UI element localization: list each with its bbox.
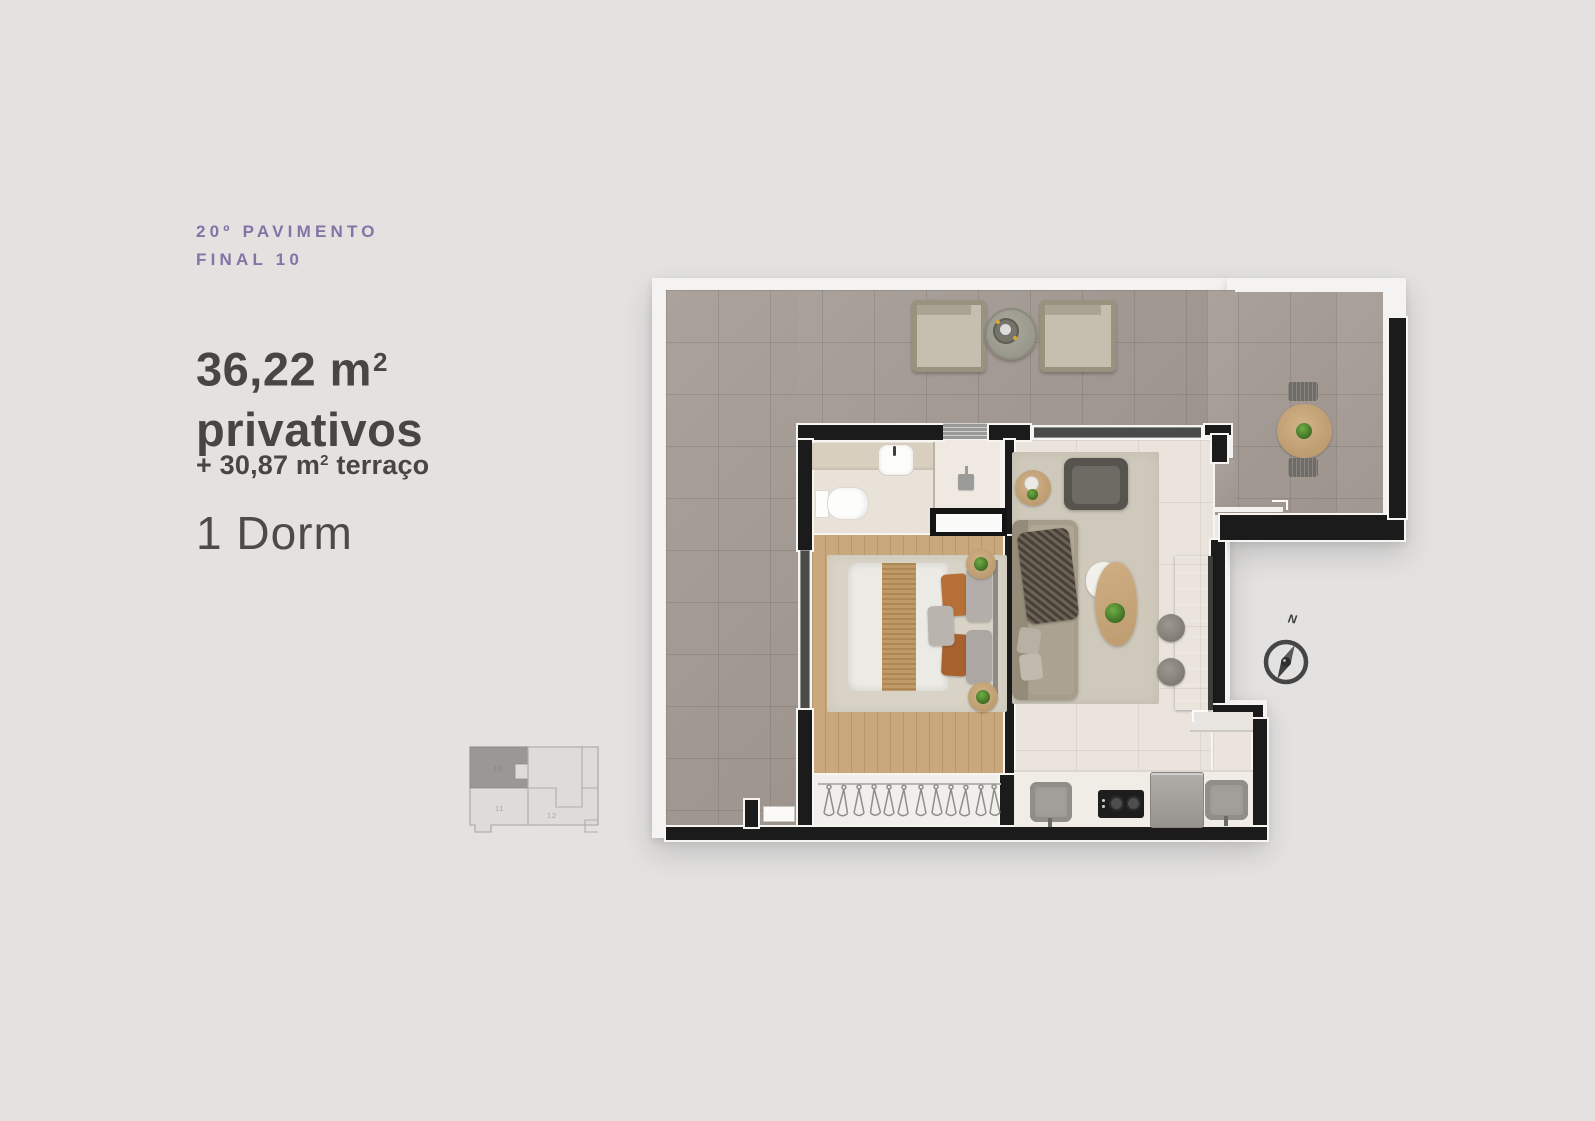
wall-terrace-arm-bottom — [1220, 515, 1404, 540]
wall-kitchen-right — [1253, 719, 1267, 827]
keyplan-label-12: 12 — [547, 811, 557, 820]
living-sliding-door — [1030, 427, 1205, 438]
wall-living-right — [1211, 540, 1225, 705]
terrace-table-dot-1 — [996, 320, 1000, 324]
wall-terrace-arm-right — [1389, 318, 1406, 518]
terrace-ac-unit — [763, 806, 795, 822]
page: { "panel": { "floor_line1": "20º PAVIMEN… — [0, 0, 1595, 1121]
lounge-chair-right-back — [1045, 305, 1101, 315]
wall-corner-topright-bar — [1205, 425, 1231, 435]
keyplan-label-10: 10 — [493, 764, 503, 773]
side-table-plant — [1027, 489, 1038, 500]
terrace-table-bottle — [1000, 324, 1011, 335]
private-area-value: 36,22 m2 — [196, 330, 616, 400]
wall-top-bath — [798, 425, 943, 440]
info-panel: 20º PAVIMENTO FINAL 10 36,22 m2 privativ… — [196, 218, 616, 274]
bed-pillow-gray-center — [927, 606, 954, 647]
shelf-bracket-icon — [1192, 710, 1208, 722]
bathroom-faucet — [893, 446, 896, 456]
wall-bottom — [666, 827, 1267, 840]
floor-label: 20º PAVIMENTO FINAL 10 — [196, 218, 616, 274]
sofa-pillow-2 — [1019, 653, 1044, 681]
desk-chair — [1064, 458, 1128, 510]
lounge-chair-left-back — [917, 305, 971, 315]
shower-head — [958, 474, 974, 490]
terrace-superscript: 2 — [320, 452, 329, 469]
nightstand-top-plant — [974, 557, 988, 571]
plant-left-mid — [668, 362, 718, 406]
terrace-round-table — [985, 308, 1037, 360]
toilet-bowl — [827, 487, 869, 520]
lounge-chair-right — [1040, 300, 1116, 372]
shower-glass — [933, 442, 935, 508]
keyplan: 10 11 12 — [455, 735, 605, 840]
stool-2 — [1157, 658, 1185, 686]
closet-hangers — [815, 777, 1004, 825]
plant-top-left-large — [668, 292, 736, 362]
bedroom-dresser-top — [936, 514, 1002, 532]
coffee-table-plant — [1105, 603, 1125, 623]
plant-arm-3 — [1335, 303, 1377, 345]
wall-corner-topright-stem — [1212, 435, 1227, 462]
dorm-count: 1 Dorm — [196, 506, 353, 560]
wall-stub-bottom-left — [745, 800, 758, 827]
bathroom-counter — [812, 443, 935, 470]
dining-bench-bottom — [1288, 458, 1318, 477]
plant-arm-1 — [1242, 303, 1283, 348]
louver-window — [943, 423, 989, 439]
compass-icon — [1257, 632, 1315, 690]
desk-chair-cushion — [1072, 466, 1120, 504]
dining-table-plant — [1296, 423, 1312, 439]
bathroom-sink — [878, 444, 914, 476]
dining-bench-top — [1288, 382, 1318, 401]
wall-bedroom-left-lower — [798, 710, 812, 827]
bed-headboard — [993, 560, 998, 694]
kitchen-sink-left-faucet — [1048, 818, 1052, 827]
keyplan-label-11: 11 — [495, 804, 504, 813]
fridge — [1150, 772, 1204, 828]
cooktop-burner-1 — [1109, 796, 1124, 811]
floorplan-render: N — [652, 278, 1406, 840]
cooktop-knobs — [1102, 799, 1105, 802]
lounge-chair-left — [912, 300, 986, 372]
area-superscript: 2 — [373, 347, 388, 377]
plant-top-left-small — [737, 292, 781, 338]
sliding-door-cap-left — [1030, 427, 1034, 438]
bedroom-sliding-door — [800, 550, 810, 710]
bed — [848, 560, 998, 694]
sofa — [1012, 520, 1078, 700]
plant-bottom-left — [672, 757, 738, 813]
kitchen-sink-left — [1030, 782, 1072, 822]
kitchen-sink-right — [1205, 780, 1248, 820]
sofa-pillow-1 — [1016, 627, 1041, 656]
bed-throw — [882, 563, 916, 691]
floor-label-line1: 20º PAVIMENTO — [196, 218, 616, 246]
sofa-throw — [1017, 527, 1080, 625]
cooktop — [1098, 790, 1144, 818]
compass-north-label: N — [1287, 611, 1298, 626]
stool-1 — [1157, 614, 1185, 642]
island-dark-edge — [1208, 556, 1213, 710]
floor-label-line2: FINAL 10 — [196, 246, 616, 274]
plant-arm-2 — [1287, 300, 1331, 347]
private-area: 36,22 m2 privativos — [196, 330, 616, 460]
wall-top-mid — [989, 425, 1030, 440]
shower-arm — [965, 466, 968, 475]
plant-arm-bottom — [1338, 477, 1386, 517]
wall-bedroom-left-upper — [798, 440, 812, 550]
cooktop-burner-2 — [1126, 796, 1141, 811]
bed-pillow-back-2 — [966, 630, 992, 684]
terrace-spigot-icon — [1272, 500, 1288, 510]
terrace-table-dot-2 — [1013, 336, 1017, 340]
nightstand-bottom-plant — [976, 690, 990, 704]
kitchen-sink-right-faucet — [1224, 816, 1228, 826]
terrace-area: + 30,87 m2 terraço — [196, 450, 429, 481]
